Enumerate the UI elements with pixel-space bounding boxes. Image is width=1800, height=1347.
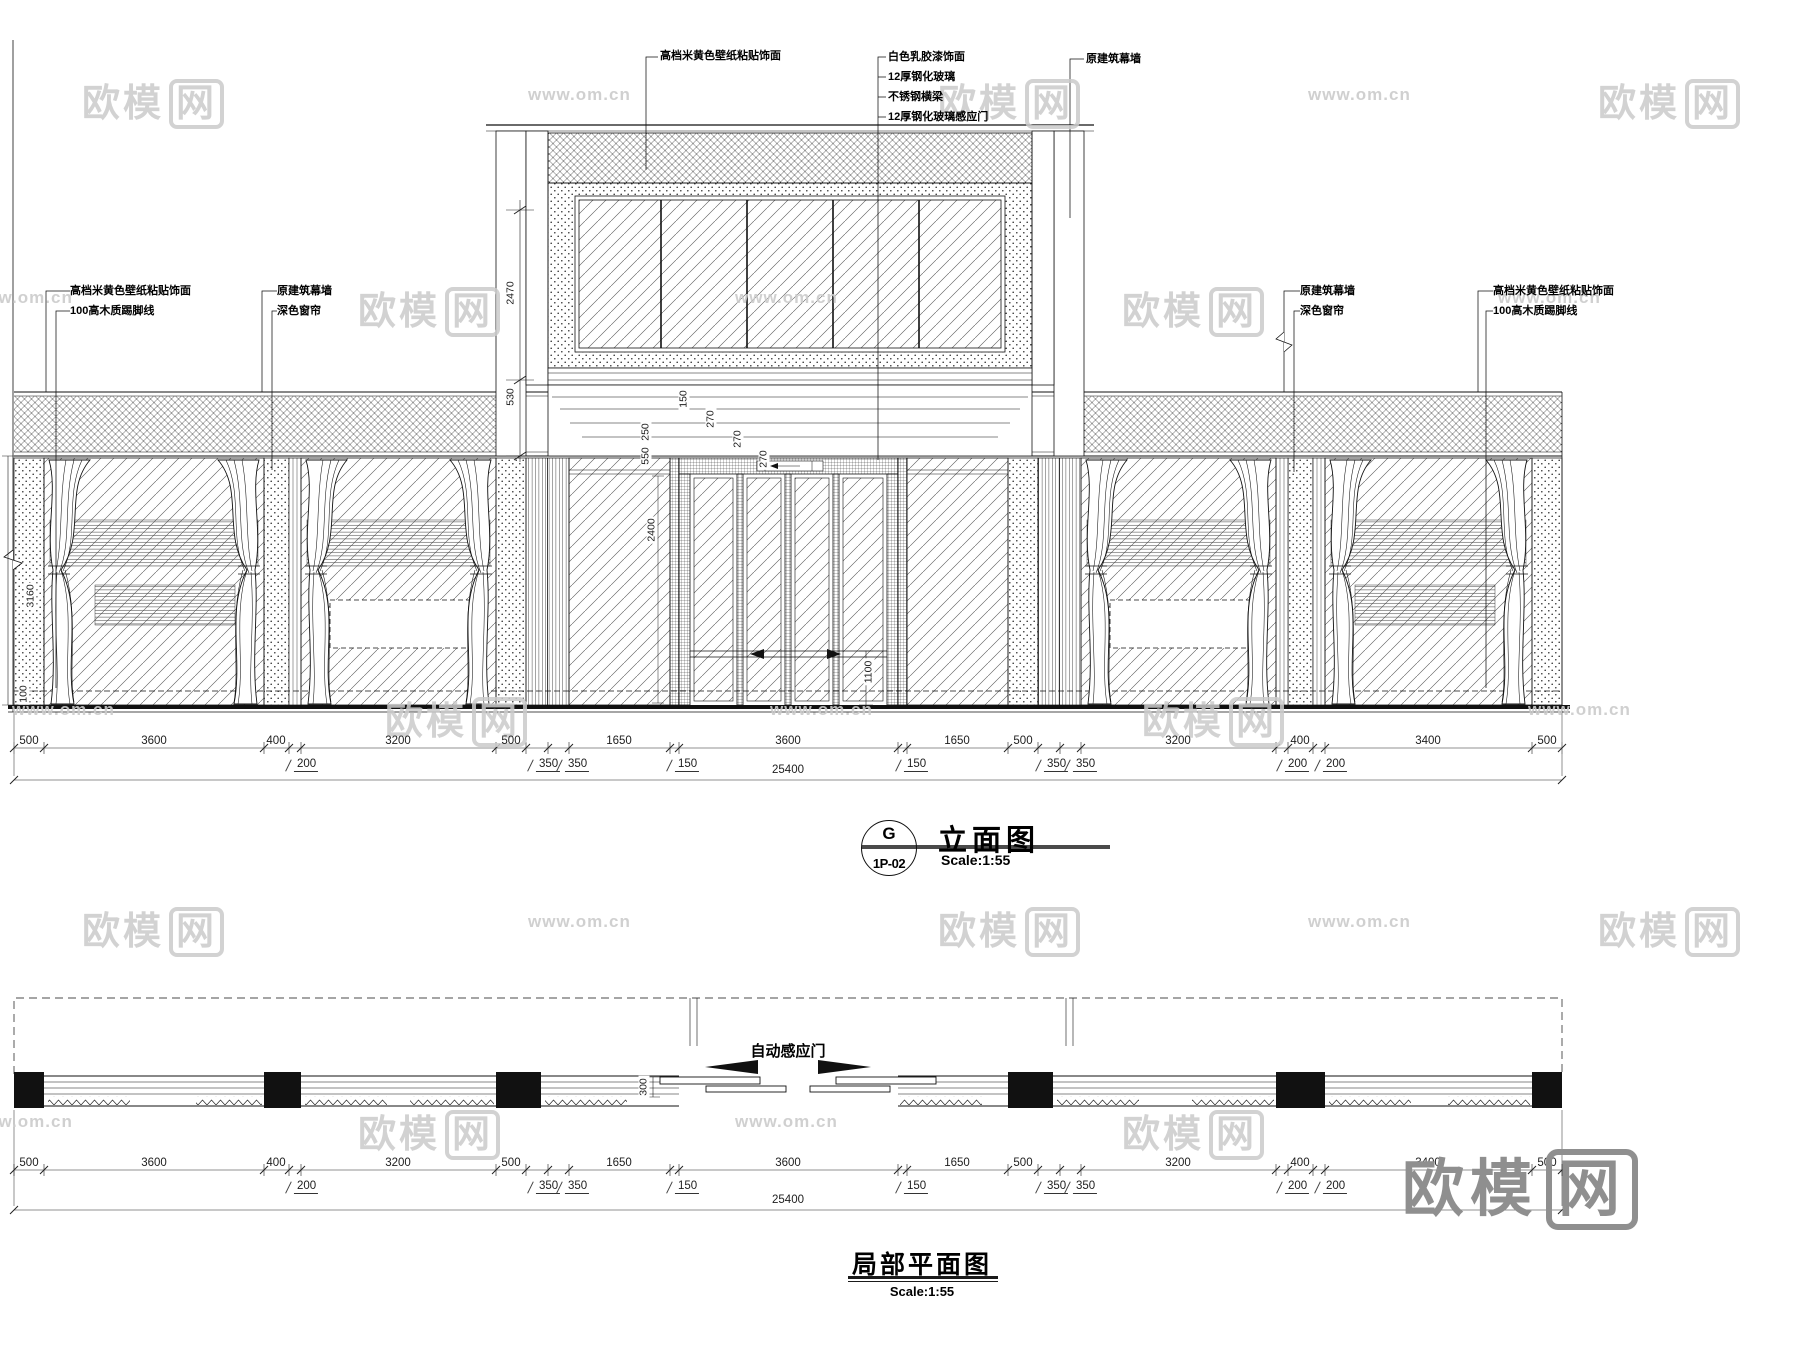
dim-label: 150 xyxy=(904,1180,928,1194)
callout-text: 白色乳胶漆饰面 xyxy=(888,47,988,67)
bubble-letter: G xyxy=(862,824,916,844)
dim-label: 150 xyxy=(679,388,690,410)
callout-text: 原建筑幕墙 xyxy=(1300,281,1355,301)
callout-right-outer: 高档米黄色壁纸粘贴饰面100高木质踢脚线 xyxy=(1493,281,1614,321)
dim-label: 500 xyxy=(1537,735,1556,748)
dim-label: 3600 xyxy=(775,735,801,748)
dim-label: 3400 xyxy=(1415,735,1441,748)
dim-label: 350 xyxy=(565,1180,589,1194)
plan-dashed-outline xyxy=(14,998,1562,1074)
callout-right-inner: 原建筑幕墙深色窗帘 xyxy=(1300,281,1355,321)
dim-label: 400 xyxy=(266,735,285,748)
plan-sliding-door xyxy=(660,1060,936,1092)
dim-label: 150 xyxy=(675,758,699,772)
callout-text: 100高木质踢脚线 xyxy=(70,301,191,321)
dim-label: 350 xyxy=(1073,1180,1097,1194)
dim-label: 150 xyxy=(675,1180,699,1194)
dim-label: 200 xyxy=(1285,1180,1309,1194)
callout-left-outer: 高档米黄色壁纸粘贴饰面100高木质踢脚线 xyxy=(70,281,191,321)
dim-label: 3600 xyxy=(141,1157,167,1170)
plan-scale: Scale:1:55 xyxy=(890,1284,954,1299)
dim-label: 3200 xyxy=(1165,735,1191,748)
callout-text: 深色窗帘 xyxy=(1300,301,1355,321)
callout-left-inner: 原建筑幕墙深色窗帘 xyxy=(277,281,332,321)
dim-label: 2400 xyxy=(647,516,658,543)
dim-label: 250 xyxy=(641,421,652,443)
callout-top-right: 原建筑幕墙 xyxy=(1086,49,1141,69)
dim-label: 350 xyxy=(1073,758,1097,772)
dim-label: 3600 xyxy=(141,735,167,748)
tower-clerestory xyxy=(486,125,1094,456)
dim-label: 200 xyxy=(1285,758,1309,772)
wallpaper-band-left xyxy=(14,396,496,452)
dim-label: 2470 xyxy=(506,279,517,306)
plan-title-underline xyxy=(848,1276,998,1279)
plan-title-underline-2 xyxy=(848,1281,998,1282)
dim-label: 1650 xyxy=(606,735,632,748)
dim-label: 300 xyxy=(639,1076,650,1098)
dim-label: 270 xyxy=(733,428,744,450)
dim-label: 3200 xyxy=(385,735,411,748)
wallpaper-band-right xyxy=(1084,396,1562,452)
callout-text: 12厚钢化玻璃感应门 xyxy=(888,107,988,127)
detail-reference-bubble: G 1P-02 xyxy=(861,820,917,876)
callout-text: 高档米黄色壁纸粘贴饰面 xyxy=(1493,281,1614,301)
dim-label: 1650 xyxy=(606,1157,632,1170)
dim-label: 1650 xyxy=(944,1157,970,1170)
dim-label: 350 xyxy=(565,758,589,772)
break-symbol xyxy=(1276,332,1292,352)
elevation-total-dim: 25400 xyxy=(772,764,804,776)
dim-label: 550 xyxy=(641,445,652,467)
callout-text: 原建筑幕墙 xyxy=(277,281,332,301)
dim-label: 100 xyxy=(19,683,30,705)
om-logo-watermark-large: 欧模网 xyxy=(1402,1138,1638,1228)
dim-label: 500 xyxy=(19,735,38,748)
bubble-sheet-number: 1P-02 xyxy=(862,856,916,871)
elevation-dim-row-minor: 200350350150150350350200200 xyxy=(0,758,1800,774)
callout-text: 深色窗帘 xyxy=(277,301,332,321)
dim-label: 150 xyxy=(904,758,928,772)
dim-label: 1650 xyxy=(944,735,970,748)
dim-label: 500 xyxy=(1013,1157,1032,1170)
dim-label: 270 xyxy=(706,408,717,430)
clerestory-glass xyxy=(579,200,1001,348)
callout-text: 100高木质踢脚线 xyxy=(1493,301,1614,321)
dim-label: 270 xyxy=(759,448,770,470)
callout-text: 不锈钢横梁 xyxy=(888,87,988,107)
elevation-drawing xyxy=(4,40,1570,712)
dim-label: 500 xyxy=(501,1157,520,1170)
dim-label: 200 xyxy=(294,758,318,772)
elevation-scale: Scale:1:55 xyxy=(941,852,1010,868)
plan-total-dim: 25400 xyxy=(772,1194,804,1206)
dim-label: 530 xyxy=(506,386,517,408)
drawing-canvas: 欧模网欧模网欧模网欧模网欧模网欧模网欧模网欧模网欧模网欧模网欧模网欧模网 www… xyxy=(0,0,1800,1347)
dim-label: 200 xyxy=(294,1180,318,1194)
dim-label: 400 xyxy=(1290,735,1309,748)
door-swing-arrow-right-icon xyxy=(818,1060,871,1074)
auto-door-label: 自动感应门 xyxy=(750,1040,825,1061)
dim-label: 500 xyxy=(501,735,520,748)
callout-top-left: 高档米黄色壁纸粘贴饰面 xyxy=(660,46,781,66)
callout-text: 高档米黄色壁纸粘贴饰面 xyxy=(70,281,191,301)
dim-label: 1100 xyxy=(864,659,875,686)
dim-label: 3200 xyxy=(385,1157,411,1170)
dim-label: 400 xyxy=(1290,1157,1309,1170)
dim-label: 200 xyxy=(1323,1180,1347,1194)
callout-text: 12厚钢化玻璃 xyxy=(888,67,988,87)
dim-label: 500 xyxy=(1013,735,1032,748)
dim-label: 500 xyxy=(19,1157,38,1170)
door-swing-arrow-left-icon xyxy=(705,1060,758,1074)
floor-line xyxy=(8,705,1570,709)
callout-top-center-stack: 白色乳胶漆饰面12厚钢化玻璃不锈钢横梁12厚钢化玻璃感应门 xyxy=(888,47,988,127)
dim-label: 3600 xyxy=(775,1157,801,1170)
dim-label: 400 xyxy=(266,1157,285,1170)
dim-label: 3160 xyxy=(26,582,37,609)
elevation-dim-row-major: 5003600400320050016503600165050032004003… xyxy=(0,735,1800,751)
dim-label: 200 xyxy=(1323,758,1347,772)
dim-label: 3200 xyxy=(1165,1157,1191,1170)
window-bay xyxy=(44,458,264,705)
